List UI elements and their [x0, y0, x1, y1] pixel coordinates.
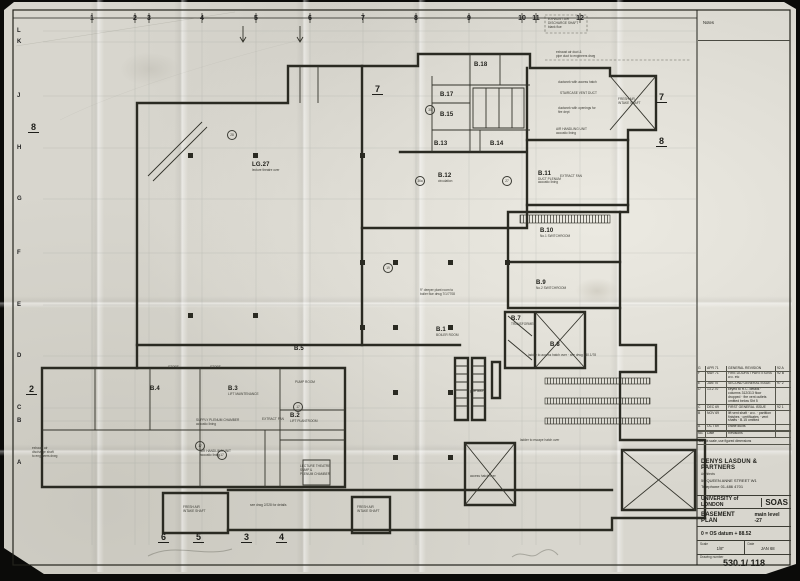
revision-cell: C	[697, 405, 706, 410]
revision-cell: MAY 71	[706, 372, 727, 381]
room-label: B.18	[474, 62, 487, 68]
revision-cell	[776, 411, 790, 424]
plan-annotation: see drwg 2/228 for details	[250, 503, 287, 507]
datum-value: 0 = OS datum + 88.52	[701, 531, 751, 537]
grid-number: 1	[90, 15, 94, 22]
drawing-number: 530.1/ 118	[700, 558, 788, 568]
reference-circle: 17	[293, 402, 303, 412]
revision-row: D13.2.70keyed to R.C. details · columns …	[697, 388, 791, 406]
revision-cell: A	[697, 425, 706, 430]
revision-cell: G	[697, 366, 706, 371]
grid-number: 2	[133, 15, 137, 22]
revision-cell: APR 71	[706, 366, 727, 371]
do-not-scale-note: Do not scale, use figured dimensions	[697, 438, 791, 445]
plan-annotation: access hatch over	[470, 474, 496, 478]
client-abbrev: SOAS	[761, 498, 791, 507]
grid-letter: D	[17, 353, 21, 359]
plan-annotation: STORE	[210, 365, 221, 369]
grid-letter: K	[17, 39, 21, 45]
room-label: B.12circulation	[438, 173, 452, 183]
grid-number: 5	[254, 15, 258, 22]
room-label: B.13	[434, 141, 447, 147]
plan-annotation: SUPPLY PLENUM CHAMBER acoustic lining	[196, 418, 239, 426]
room-label: B.8	[550, 342, 560, 348]
section-marker: 8	[28, 122, 39, 133]
grid-letter: F	[17, 250, 21, 256]
revision-cell: E	[697, 382, 706, 387]
revision-rows: GAPR 71GENERAL REVISION92 AFMAY 71FIRE D…	[697, 366, 791, 431]
reference-circle: 28	[227, 130, 237, 140]
revision-header-revisions: Revisions	[727, 432, 776, 437]
notes-box: Notes	[698, 11, 790, 365]
revision-cell: crane ducts	[727, 425, 776, 430]
grid-number: 11	[532, 15, 539, 22]
client-name: UNIVERSITY of LONDON	[697, 496, 761, 508]
room-label: B.10No.1 SWITCHROOM	[540, 228, 570, 238]
revision-cell: B	[697, 411, 706, 424]
grid-letter: G	[17, 196, 22, 202]
room-label: B.17	[440, 92, 453, 98]
plan-annotation: exhaust air duct & pipe duct to engineer…	[556, 50, 595, 58]
section-marker: 7	[372, 84, 383, 95]
plan-annotation: exhaust air discharge shaft to engineers…	[32, 446, 57, 458]
date-value: JAN 68	[748, 546, 789, 551]
section-marker: 5	[193, 532, 204, 543]
grid-letter: J	[17, 93, 20, 99]
reference-circle: 17	[195, 441, 205, 451]
notes-rule	[698, 40, 790, 41]
room-label: B.9No.2 SWITCHROOM	[536, 280, 566, 290]
grid-letter: E	[17, 302, 21, 308]
revision-cell	[776, 425, 790, 430]
revision-cell: FIRE DOORS / PARTITIONS w.c. etc	[727, 372, 776, 381]
client-block: UNIVERSITY of LONDON SOAS	[697, 496, 791, 509]
grid-number: 8	[414, 15, 418, 22]
architect-phone: Telephone 01-486 4701	[701, 484, 787, 489]
revision-cell: 92 A	[776, 366, 790, 371]
revision-cell: NOV 69	[706, 411, 727, 424]
grid-letter: C	[17, 405, 21, 411]
revision-cell: FIRST GENERAL ISSUE	[727, 405, 776, 410]
revision-header-no: No.	[697, 432, 706, 437]
notes-label: Notes	[703, 20, 714, 25]
revision-cell: DEC 69	[706, 405, 727, 410]
drawing-title-sub: main level -27	[754, 512, 787, 524]
datum-strip: 0 = OS datum + 88.52	[697, 527, 791, 541]
revision-header-date: Date	[706, 432, 727, 437]
section-marker: 6	[158, 532, 169, 543]
revision-cell: keyed to R.C. details · columns 312/313 …	[727, 388, 776, 405]
title-strip: BASEMENT PLAN main level -27	[697, 509, 791, 527]
grid-number: 3	[147, 15, 151, 22]
drawing-number-block: Drawing number 530.1/ 118	[697, 555, 791, 566]
reference-circle: 17	[217, 450, 227, 460]
room-label: B.2LIFT PLANTROOM	[290, 413, 318, 423]
reference-circle: 30	[425, 105, 435, 115]
room-label: LG.27lecture theatre over	[252, 162, 279, 172]
revision-cell: JAN 70	[706, 382, 727, 387]
room-label: B.11DUCT PLENUM acoustic lining	[538, 171, 561, 185]
revision-cell: OCT 69	[706, 425, 727, 430]
section-marker: 8	[656, 136, 667, 147]
plan-annotation: ductwork with openings for fire dept	[558, 106, 596, 114]
revision-cell	[776, 388, 790, 405]
revision-cell: lift vent shaft · w.c. · partition finis…	[727, 411, 776, 424]
revision-cell: SECOND GENERAL ISSUE	[727, 382, 776, 387]
plan-annotation: ladder to access hatch over · see drwg 5…	[528, 353, 596, 357]
room-label: B.5	[294, 346, 304, 352]
reference-circle: 19	[383, 263, 393, 273]
grid-number: 9	[467, 15, 471, 22]
revision-cell: 92 1	[776, 405, 790, 410]
grid-letter: H	[17, 145, 21, 151]
revision-cell: 13.2.70	[706, 388, 727, 405]
labels-layer: 123456789101112LKJHGFEDCBA827786534LG.27…	[0, 0, 800, 581]
scale-date-row: Scale 1/8" Date JAN 68	[697, 541, 791, 555]
room-label: B.4	[150, 386, 160, 392]
plan-annotation: FRESH AIR INTAKE SHAFT	[618, 97, 641, 105]
room-label: B.14	[490, 141, 503, 147]
reference-circle: 36a	[415, 176, 425, 186]
plan-annotation: EXTRACT FAN	[262, 417, 284, 421]
plan-annotation: 9" deeper plant room to boiler flue drwg…	[420, 288, 455, 296]
scanned-drawing-sheet: 123456789101112LKJHGFEDCBA827786534LG.27…	[0, 0, 800, 581]
architect-name: DENYS LASDUN & PARTNERS	[701, 459, 787, 471]
revision-cell: D	[697, 388, 706, 405]
section-marker: 4	[276, 532, 287, 543]
room-label: B.3LIFT MAINTENANCE	[228, 386, 259, 396]
room-label: B.15	[440, 112, 453, 118]
plan-annotation: STAIRCASE VENT DUCT	[560, 91, 597, 95]
architect-block: DENYS LASDUN & PARTNERS Architects 50 QU…	[697, 457, 791, 496]
plan-annotation: EXHAUST AIR DISCHARGE SHAFT blank flue	[548, 17, 578, 29]
plan-annotation: PUMP ROOM	[295, 380, 315, 384]
revision-cell: 97 2	[776, 382, 790, 387]
revision-row: BNOV 69lift vent shaft · w.c. · partitio…	[697, 411, 791, 425]
revision-header-row: No. Date Revisions	[697, 431, 791, 438]
grid-number: 6	[308, 15, 312, 22]
plan-annotation: pipe duct	[470, 389, 483, 393]
section-marker: 3	[241, 532, 252, 543]
revision-cell: F	[697, 372, 706, 381]
grid-letter: L	[17, 28, 21, 34]
grid-letter: A	[17, 460, 21, 466]
section-marker: 2	[26, 384, 37, 395]
grid-letter: B	[17, 418, 21, 424]
architect-role: Architects	[701, 472, 787, 476]
room-label: B.1BOILER ROOM	[436, 327, 459, 337]
revision-row: FMAY 71FIRE DOORS / PARTITIONS w.c. etc9…	[697, 372, 791, 382]
grid-number: 10	[518, 15, 526, 22]
plan-annotation: LECTURE THEATRE SUMP & PLENUM CHAMBER	[300, 464, 330, 476]
plan-annotation: ductwork with access hatch	[558, 80, 597, 84]
plan-annotation: AIR HANDLING UNIT acoustic lining	[556, 127, 587, 135]
plan-annotation: EXTRACT FAN	[560, 174, 582, 178]
plan-annotation: STORE	[168, 365, 179, 369]
scale-value: 1/8"	[700, 546, 741, 551]
plan-annotation: FRESH AIR INTAKE SHAFT	[183, 505, 206, 513]
room-label: B.7TRANSFORMER	[511, 316, 536, 326]
revision-table: GAPR 71GENERAL REVISION92 AFMAY 71FIRE D…	[697, 366, 791, 445]
grid-number: 7	[361, 15, 365, 22]
revision-cell: GENERAL REVISION	[727, 366, 776, 371]
grid-number: 4	[200, 15, 204, 22]
revision-cell: 92 B	[776, 372, 790, 381]
plan-annotation: FRESH AIR INTAKE SHAFT	[357, 505, 380, 513]
architect-address: 50 QUEEN ANNE STREET W1	[701, 478, 787, 483]
plan-annotation: ladder to escape hatch over	[520, 438, 559, 442]
revision-header-ref	[776, 432, 790, 437]
section-marker: 7	[656, 92, 667, 103]
reference-circle: 27	[502, 176, 512, 186]
drawing-title-main: BASEMENT PLAN	[701, 512, 750, 524]
